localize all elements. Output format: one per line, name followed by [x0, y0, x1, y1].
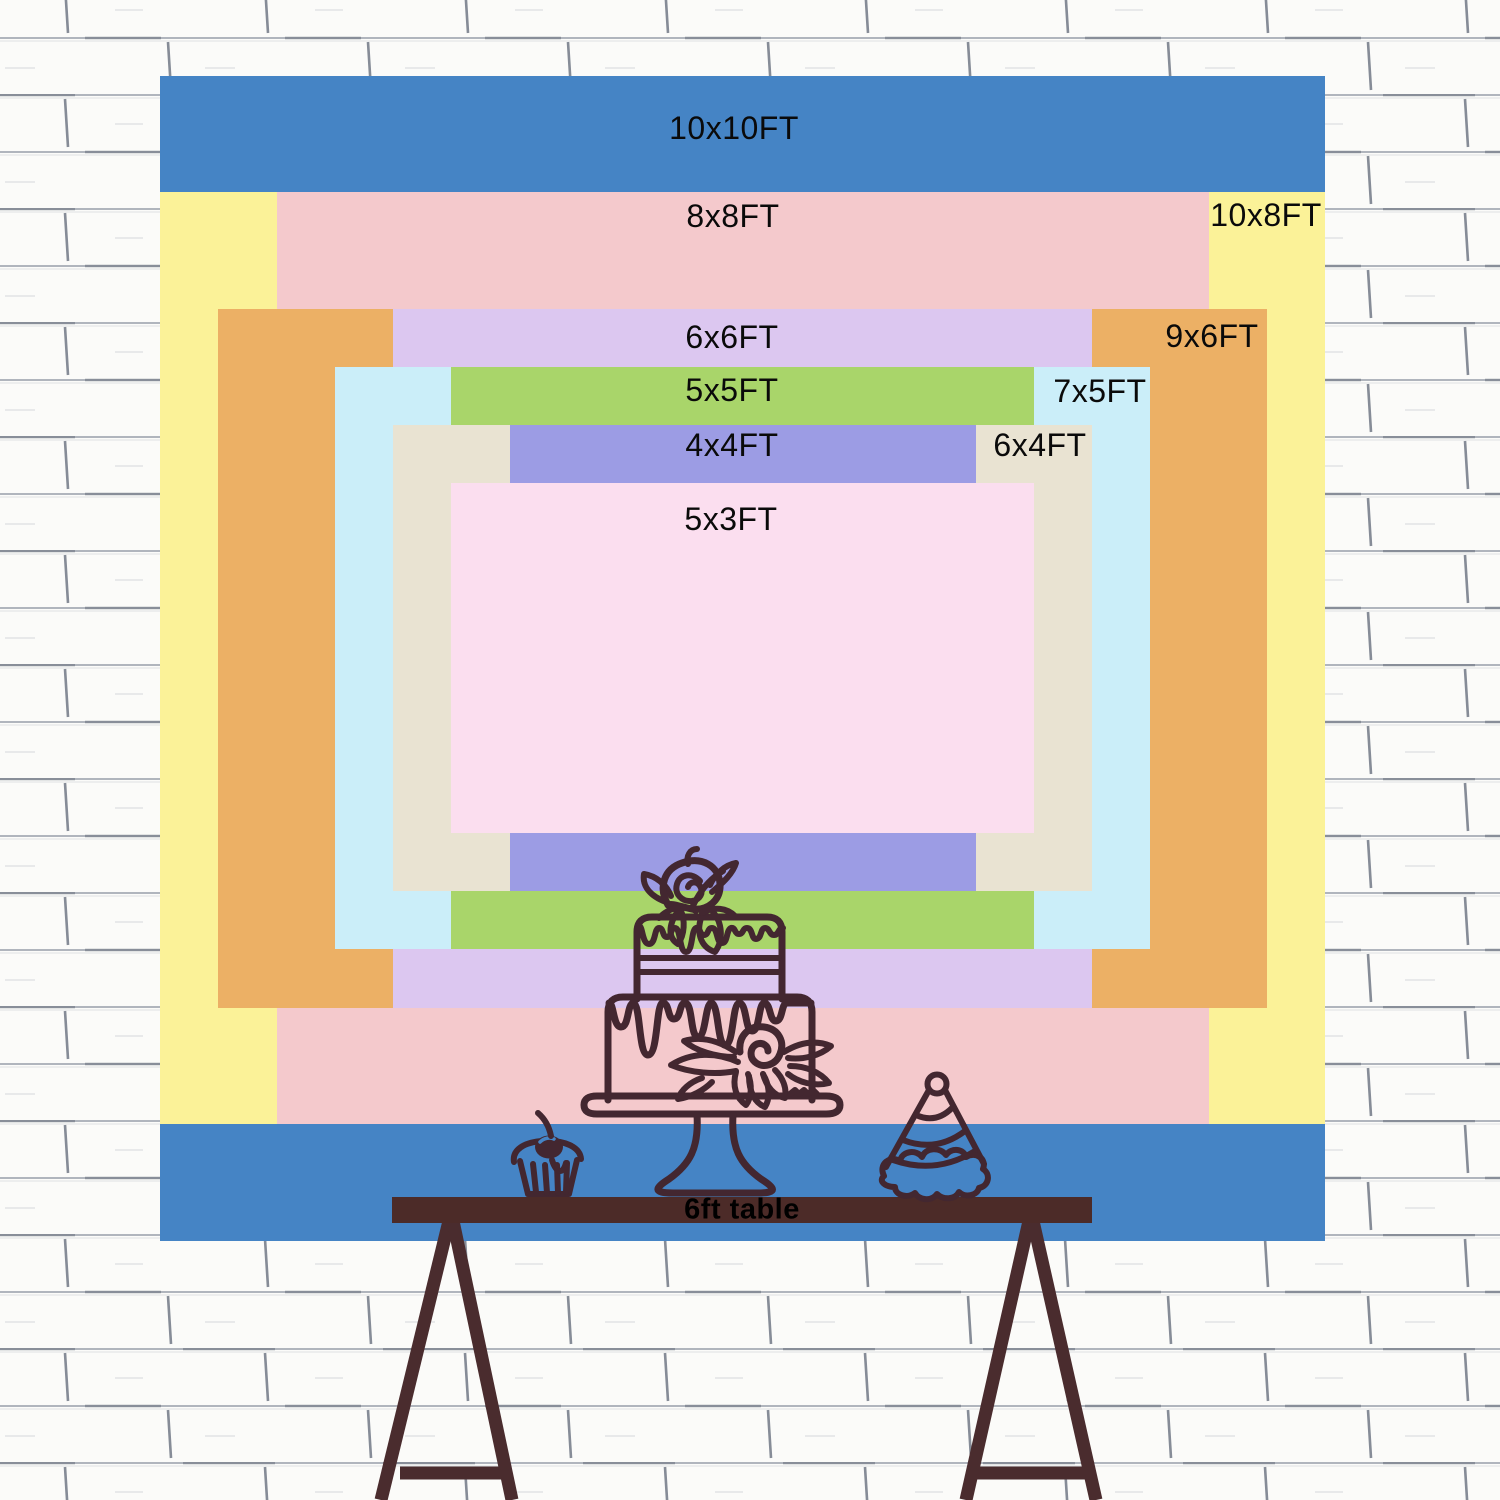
size-label-10x8: 10x8FT	[1210, 199, 1321, 231]
size-label-10x10: 10x10FT	[669, 112, 799, 144]
size-labels: 10x10FT10x8FT8x8FT9x6FT6x6FT7x5FT5x5FT6x…	[0, 0, 1500, 1500]
size-label-6x4: 6x4FT	[993, 429, 1086, 461]
size-label-7x5: 7x5FT	[1053, 375, 1146, 407]
size-label-5x3: 5x3FT	[684, 503, 777, 535]
size-label-5x5: 5x5FT	[685, 374, 778, 406]
size-label-9x6: 9x6FT	[1165, 320, 1258, 352]
size-label-6x6: 6x6FT	[685, 321, 778, 353]
size-label-4x4: 4x4FT	[685, 429, 778, 461]
size-label-8x8: 8x8FT	[686, 200, 779, 232]
backdrop-size-chart: 10x10FT10x8FT8x8FT9x6FT6x6FT7x5FT5x5FT6x…	[0, 0, 1500, 1500]
table-label: 6ft table	[684, 1194, 800, 1227]
